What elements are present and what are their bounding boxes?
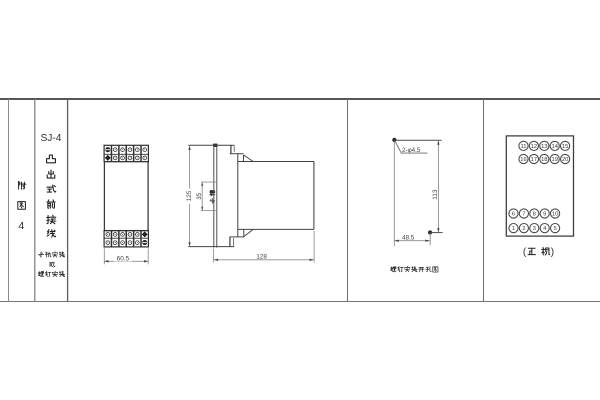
- svg-text:15: 15: [562, 144, 568, 150]
- svg-text:113: 113: [432, 189, 439, 200]
- svg-text:14: 14: [551, 144, 558, 150]
- svg-text:SJ-4: SJ-4: [41, 133, 62, 144]
- svg-text:5: 5: [553, 226, 556, 232]
- svg-text:4: 4: [18, 220, 24, 232]
- svg-text:48.5: 48.5: [402, 235, 415, 242]
- svg-text:16: 16: [520, 157, 526, 163]
- svg-text:60.5: 60.5: [117, 255, 130, 262]
- svg-text:13: 13: [541, 144, 547, 150]
- svg-text:18: 18: [541, 157, 547, 163]
- svg-text:1: 1: [512, 226, 515, 232]
- svg-text:9: 9: [543, 212, 546, 218]
- svg-text:19: 19: [551, 157, 557, 163]
- svg-text:2-φ4.5: 2-φ4.5: [402, 147, 421, 154]
- svg-text:3: 3: [533, 226, 536, 232]
- svg-text:10: 10: [552, 212, 558, 218]
- svg-text:): ): [551, 247, 554, 258]
- svg-text:7: 7: [522, 212, 525, 218]
- svg-text:17: 17: [531, 157, 537, 163]
- svg-text:6: 6: [512, 212, 515, 218]
- svg-text:12: 12: [531, 144, 537, 150]
- svg-text:128: 128: [256, 253, 267, 260]
- svg-text:8: 8: [533, 212, 536, 218]
- svg-text:35: 35: [197, 192, 203, 199]
- svg-text:11: 11: [520, 144, 526, 150]
- svg-text:125: 125: [186, 190, 193, 201]
- svg-text:2: 2: [522, 226, 525, 232]
- svg-text:20: 20: [562, 157, 568, 163]
